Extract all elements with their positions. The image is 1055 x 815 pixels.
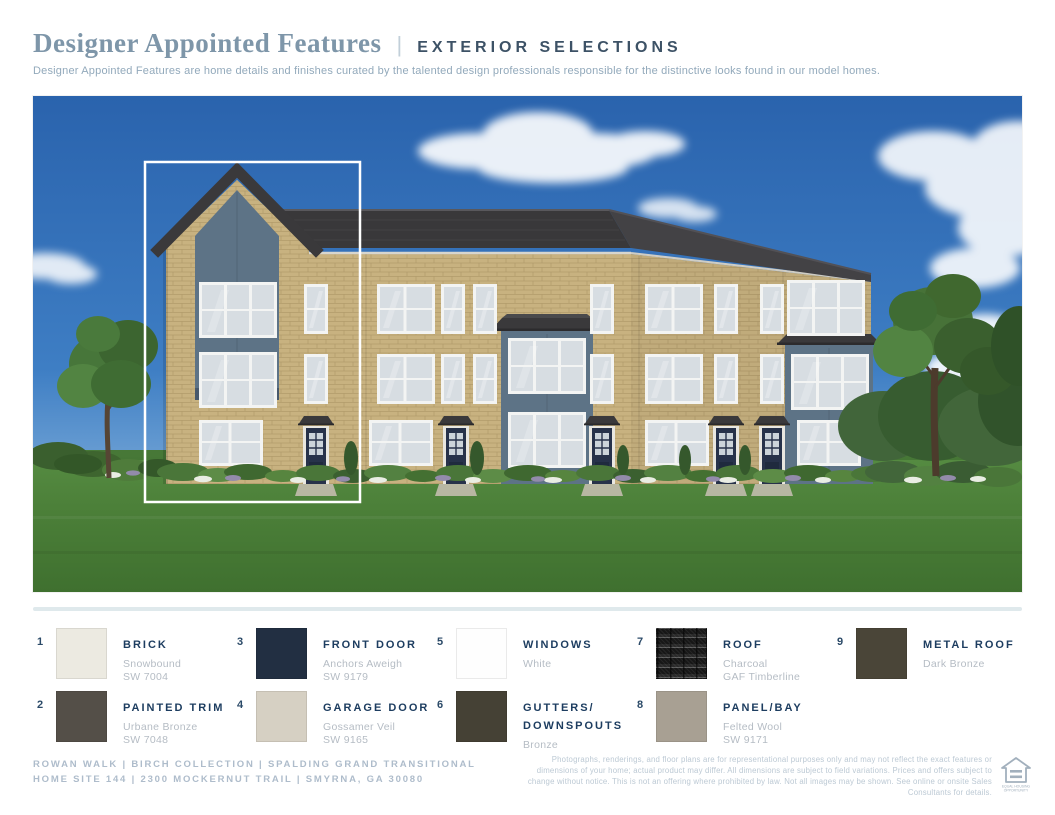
selection-number: 8 [637, 699, 643, 711]
design-sheet-page: Designer Appointed Features | EXTERIOR S… [0, 0, 1055, 815]
community-info: ROWAN WALK | BIRCH COLLECTION | SPALDING… [33, 757, 476, 787]
selection-number: 7 [637, 636, 643, 648]
section-divider [33, 607, 1022, 611]
roof-swatch [656, 628, 707, 679]
selection-item-windows: 5 WINDOWS White [437, 628, 633, 688]
rendering-svg [33, 96, 1022, 592]
selection-detail: Urbane Bronze SW 7048 [123, 721, 233, 747]
windows-swatch [456, 628, 507, 679]
selection-label: FRONT DOOR [323, 639, 417, 651]
selection-label: BRICK [123, 639, 168, 651]
selection-number: 6 [437, 699, 443, 711]
selection-label: ROOF [723, 639, 763, 651]
selection-number: 2 [37, 699, 43, 711]
selection-number: 9 [837, 636, 843, 648]
selection-number: 3 [237, 636, 243, 648]
selection-item-roof: 7 ROOF Charcoal GAF Timberline [637, 628, 833, 688]
selection-item-painted-trim: 2 PAINTED TRIM Urbane Bronze SW 7048 [37, 691, 233, 751]
selection-detail: White [523, 658, 633, 671]
selection-label: WINDOWS [523, 639, 593, 651]
equal-housing-opportunity-icon: EQUAL HOUSING OPPORTUNITY [1000, 756, 1032, 794]
selection-label: METAL ROOF [923, 639, 1015, 651]
exterior-rendering-image [33, 96, 1022, 592]
selection-item-gutters-downspouts: 6 GUTTERS/ DOWNSPOUTS Bronze [437, 691, 633, 751]
selection-detail: Gossamer Veil SW 9165 [323, 721, 433, 747]
selection-detail: Bronze [523, 739, 633, 752]
selection-label: PAINTED TRIM [123, 702, 224, 714]
selection-detail: Felted Wool SW 9171 [723, 721, 833, 747]
selection-item-brick: 1 BRICK Snowbound SW 7004 [37, 628, 233, 688]
gutters-swatch [456, 691, 507, 742]
selection-item-panel-bay: 8 PANEL/BAY Felted Wool SW 9171 [637, 691, 833, 751]
selection-item-metal-roof: 9 METAL ROOF Dark Bronze [837, 628, 1033, 688]
metal-roof-swatch [856, 628, 907, 679]
selection-detail: Dark Bronze [923, 658, 1033, 671]
selection-number: 1 [37, 636, 43, 648]
front-door-swatch [256, 628, 307, 679]
exterior-selections-list: 1 BRICK Snowbound SW 7004 2 PAINTED TRIM… [33, 628, 1022, 758]
selection-label: PANEL/BAY [723, 702, 803, 714]
legal-disclaimer: Photographs, renderings, and floor plans… [517, 754, 992, 798]
page-description: Designer Appointed Features are home det… [33, 65, 880, 77]
page-header: Designer Appointed Features | EXTERIOR S… [33, 28, 682, 59]
garage-door-swatch [256, 691, 307, 742]
painted-trim-swatch [56, 691, 107, 742]
selection-item-garage-door: 4 GARAGE DOOR Gossamer Veil SW 9165 [237, 691, 433, 751]
title-divider: | [397, 32, 403, 58]
selection-label: GUTTERS/ DOWNSPOUTS [523, 702, 623, 732]
selection-label: GARAGE DOOR [323, 702, 429, 714]
selection-detail: Snowbound SW 7004 [123, 658, 233, 684]
selection-detail: Anchors Aweigh SW 9179 [323, 658, 433, 684]
category-label: EXTERIOR SELECTIONS [417, 39, 681, 57]
brick-swatch [56, 628, 107, 679]
svg-text:OPPORTUNITY: OPPORTUNITY [1004, 789, 1029, 793]
selection-detail: Charcoal GAF Timberline [723, 658, 833, 684]
selection-number: 5 [437, 636, 443, 648]
selection-number: 4 [237, 699, 243, 711]
page-title: Designer Appointed Features [33, 28, 382, 59]
panel-bay-swatch [656, 691, 707, 742]
selection-item-front-door: 3 FRONT DOOR Anchors Aweigh SW 9179 [237, 628, 433, 688]
